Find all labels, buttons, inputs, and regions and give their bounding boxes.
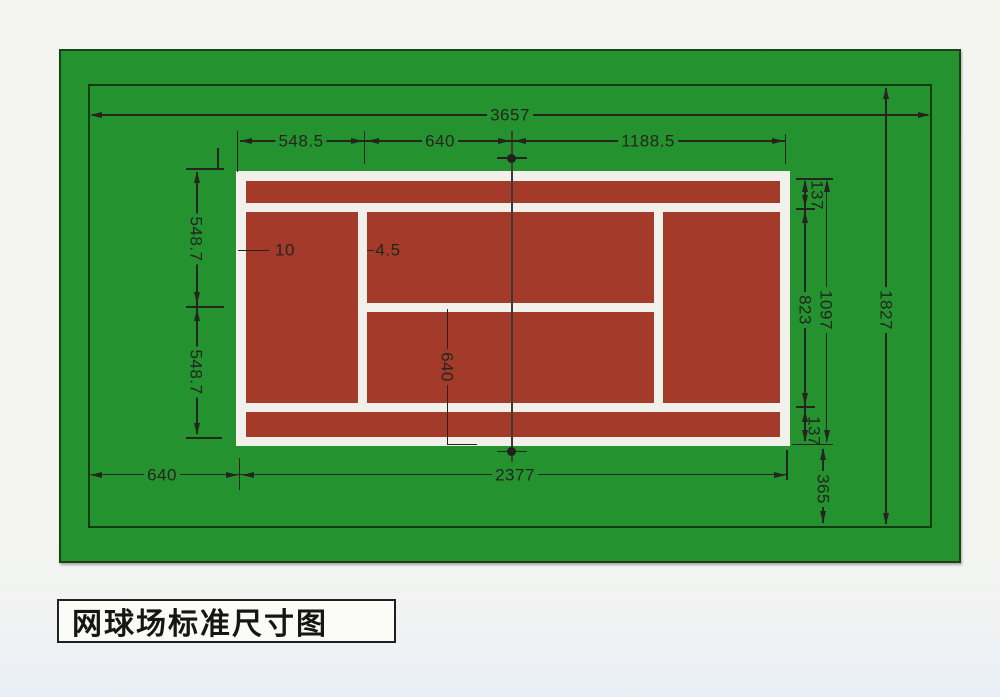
dim-arrow <box>90 112 102 118</box>
dim-arrow <box>772 138 784 144</box>
dim-arrow <box>820 448 826 460</box>
diagram-title: 网球场标准尺寸图 <box>59 599 328 643</box>
dim-arrow <box>498 138 510 144</box>
dim-label-doubles-width: 1097 <box>817 287 836 333</box>
dim-arrow <box>883 87 889 99</box>
dim-arrow <box>824 180 830 192</box>
leader-label-baseline-width: 10 <box>272 241 298 260</box>
dim-arrow <box>774 472 786 478</box>
dim-label-runback: 640 <box>144 465 180 484</box>
leader-line <box>238 250 269 252</box>
dim-label-net-to-baseline: 1188.5 <box>618 131 678 150</box>
dim-extension-tick <box>364 131 366 164</box>
dim-arrow <box>90 472 102 478</box>
dim-arrow <box>802 211 808 223</box>
leader-label-inner-line-width: 4.5 <box>372 241 403 260</box>
dim-arrow <box>824 430 830 442</box>
dim-label-total-width: 1827 <box>877 287 896 333</box>
net-center-line <box>511 131 513 462</box>
dim-arrow <box>194 292 200 304</box>
dim-arrow <box>367 138 379 144</box>
dim-extension-tick <box>186 306 224 308</box>
dim-extension-tick <box>186 437 222 439</box>
dim-arrow <box>242 472 254 478</box>
dim-arrow <box>514 138 526 144</box>
dim-arrow <box>194 423 200 435</box>
dim-extension-connector <box>217 148 219 169</box>
dim-arrow <box>802 393 808 405</box>
singles-sideline-top <box>246 203 780 212</box>
dim-extension-tick <box>237 131 239 172</box>
dim-label-side-space: 365 <box>814 471 833 507</box>
dim-label-backcourt: 548.5 <box>275 131 326 150</box>
dim-extension-tick <box>239 458 241 490</box>
service-line-right <box>654 212 663 403</box>
dim-label-singles-width: 823 <box>796 292 815 328</box>
dim-arrow <box>820 511 826 523</box>
dim-extension-tick <box>785 134 787 164</box>
dim-label-service-to-net: 640 <box>422 131 458 150</box>
net-post-marker-top <box>507 154 516 163</box>
leader-label-center-service: 640 <box>438 349 457 385</box>
dim-label-court-length: 2377 <box>492 465 538 484</box>
scanned-diagram-page: 3657 548.5 640 1188.5 548.7 548.7 <box>0 0 1000 697</box>
dim-extension-tick <box>786 450 788 480</box>
dim-arrow <box>240 138 252 144</box>
dim-arrow <box>194 171 200 183</box>
title-block: 网球场标准尺寸图 <box>57 599 396 643</box>
net-post-marker-bottom <box>507 447 516 456</box>
dim-arrow <box>194 309 200 321</box>
dim-label-half-width-upper: 548.7 <box>187 213 206 264</box>
dim-arrow <box>918 112 930 118</box>
leader-hook <box>447 444 477 446</box>
dim-arrow <box>883 513 889 525</box>
dim-line <box>91 474 787 476</box>
dim-arrow <box>351 138 363 144</box>
service-line-left <box>358 212 367 403</box>
dim-arrow <box>226 472 238 478</box>
singles-sideline-bottom <box>246 403 780 412</box>
dim-label-half-width-lower: 548.7 <box>187 346 206 397</box>
dim-label-total-length: 3657 <box>487 105 533 124</box>
dim-label-alley-bottom: 137 <box>805 413 824 449</box>
